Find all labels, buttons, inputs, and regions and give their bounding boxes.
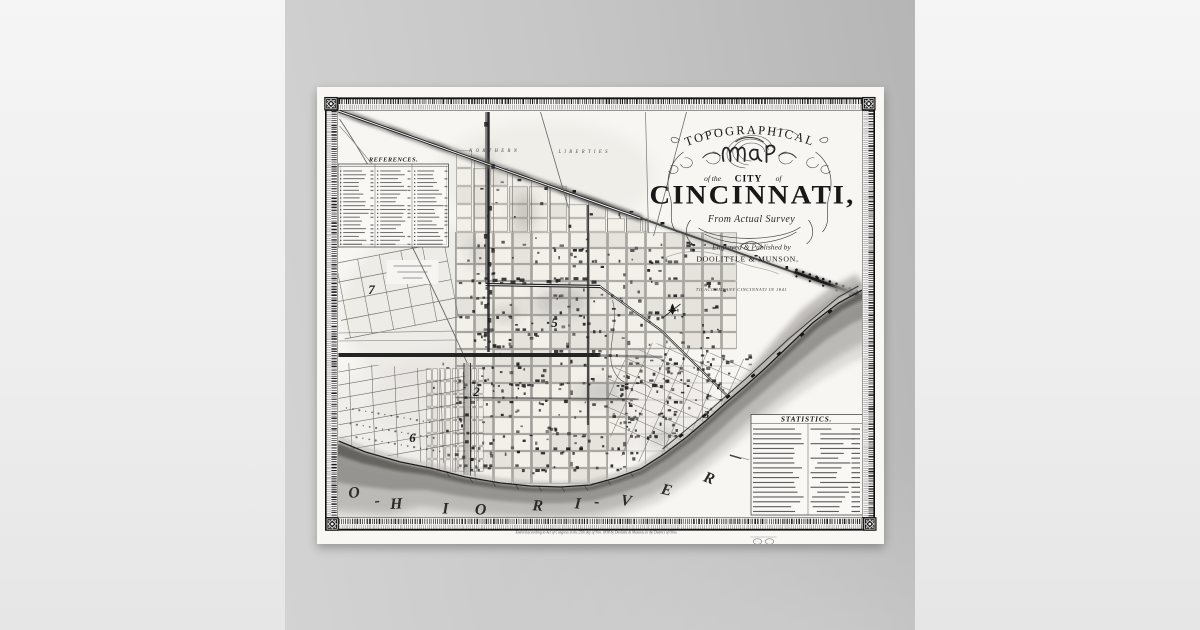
- svg-text:5: 5: [551, 315, 558, 330]
- svg-text:R: R: [531, 497, 543, 515]
- svg-text:O: O: [347, 484, 360, 502]
- svg-text:REFERENCES.: REFERENCES.: [367, 157, 417, 164]
- svg-text:From Actual Survey: From Actual Survey: [706, 214, 794, 225]
- svg-text:3: 3: [702, 409, 709, 421]
- svg-text:DOOLITTLE & MUNSON,: DOOLITTLE & MUNSON,: [696, 255, 798, 264]
- svg-text:6: 6: [409, 430, 416, 445]
- svg-text:TO ACCOMPANY CINCINNATI IN 184: TO ACCOMPANY CINCINNATI IN 1841: [695, 287, 786, 292]
- svg-text:H: H: [388, 495, 403, 513]
- svg-text:7: 7: [368, 282, 375, 297]
- svg-text:I: I: [441, 501, 449, 518]
- svg-text:CINCINNATI,: CINCINNATI,: [649, 181, 855, 210]
- svg-text:N O R T H E R N: N O R T H E R N: [468, 149, 518, 154]
- svg-text:L I B E R T I E S: L I B E R T I E S: [557, 150, 608, 155]
- svg-text:2: 2: [472, 384, 480, 399]
- svg-text:O: O: [474, 501, 486, 518]
- svg-text:Entered according to Act of Co: Entered according to Act of Congress in …: [514, 531, 677, 536]
- svg-text:Engraved & Published by: Engraved & Published by: [711, 243, 791, 252]
- svg-text:STATISTICS.: STATISTICS.: [780, 415, 831, 424]
